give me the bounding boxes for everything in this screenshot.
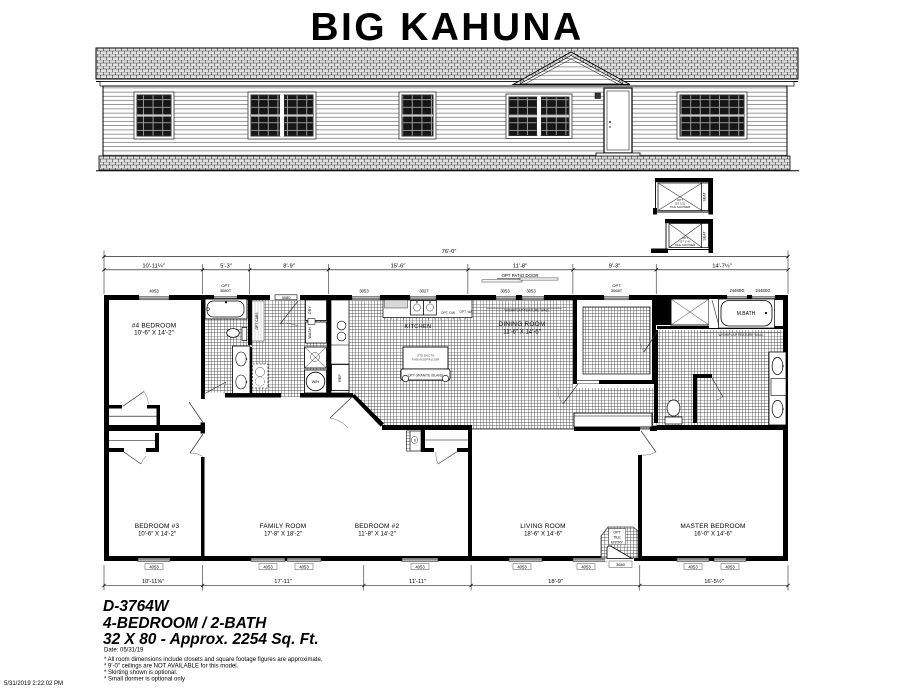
- svg-text:LIVING ROOM: LIVING ROOM: [520, 523, 566, 530]
- svg-text:11′-8″: 11′-8″: [513, 263, 527, 269]
- svg-text:3027: 3027: [419, 289, 429, 294]
- svg-text:5/31/2019 2:22:02 PM: 5/31/2019 2:22:02 PM: [4, 681, 63, 687]
- svg-text:TILE: TILE: [613, 536, 621, 540]
- svg-text:#4 BEDROOM: #4 BEDROOM: [132, 323, 177, 330]
- svg-text:* 9′-0″ ceilings are NOT AVAIL: * 9′-0″ ceilings are NOT AVAILABLE for t…: [104, 664, 239, 670]
- svg-text:SEAT: SEAT: [702, 231, 706, 241]
- svg-text:OPT GRANITE ISLAND: OPT GRANITE ISLAND: [408, 374, 444, 378]
- svg-text:10′-6″ X 14′-2″: 10′-6″ X 14′-2″: [138, 532, 177, 538]
- svg-text:3053: 3053: [500, 289, 510, 294]
- svg-text:3053: 3053: [526, 289, 536, 294]
- svg-text:5′-3″: 5′-3″: [220, 263, 232, 269]
- svg-text:W/SHIPLAP FEATURE WALL: W/SHIPLAP FEATURE WALL: [505, 309, 550, 313]
- svg-text:10′-6″ X 14′-2″: 10′-6″ X 14′-2″: [134, 330, 174, 337]
- svg-text:3080T: 3080T: [220, 288, 232, 293]
- svg-text:W/H: W/H: [312, 380, 320, 384]
- svg-text:10′-11⅝″: 10′-11⅝″: [142, 579, 164, 585]
- svg-text:3068T: 3068T: [611, 288, 623, 293]
- svg-text:D-3764W: D-3764W: [103, 598, 170, 615]
- svg-text:DINING ROOM: DINING ROOM: [499, 321, 546, 328]
- svg-text:BEDROOM #2: BEDROOM #2: [355, 523, 400, 530]
- svg-text:WASH: WASH: [308, 327, 312, 339]
- svg-text:16′-0″ X 14′-6″: 16′-0″ X 14′-6″: [694, 532, 733, 538]
- svg-text:ENTRY: ENTRY: [611, 541, 624, 545]
- svg-text:11′-8″ X 14′-2″: 11′-8″ X 14′-2″: [358, 532, 396, 538]
- svg-text:4053: 4053: [688, 564, 698, 569]
- svg-text:18′-9″: 18′-9″: [548, 579, 563, 585]
- svg-text:* Small dormer is optional onl: * Small dormer is optional only: [104, 677, 185, 683]
- svg-text:32 X 80 - Approx. 2254 Sq. Ft.: 32 X 80 - Approx. 2254 Sq. Ft.: [103, 631, 319, 648]
- svg-text:SEAT: SEAT: [702, 192, 706, 202]
- svg-text:TILE SHOWER: TILE SHOWER: [675, 243, 697, 247]
- svg-text:TILE SHOWER: TILE SHOWER: [670, 205, 692, 209]
- svg-text:OPT CABS: OPT CABS: [255, 312, 259, 330]
- svg-text:2448SG: 2448SG: [729, 288, 744, 293]
- svg-text:3053: 3053: [359, 289, 369, 294]
- svg-text:THIS ROOF/FLOOR: THIS ROOF/FLOOR: [412, 358, 440, 362]
- svg-text:Date: 05/31/19: Date: 05/31/19: [104, 648, 144, 654]
- svg-text:16′-5½″: 16′-5½″: [704, 578, 724, 585]
- svg-text:W/SHIPLAP FEATURE WALL: W/SHIPLAP FEATURE WALL: [719, 333, 764, 337]
- svg-text:17′-8″ X 18′-2″: 17′-8″ X 18′-2″: [264, 532, 303, 538]
- svg-text:4053: 4053: [263, 564, 273, 569]
- svg-text:76′-0″: 76′-0″: [442, 249, 457, 255]
- svg-text:REF: REF: [338, 374, 342, 382]
- svg-text:15′-6″: 15′-6″: [391, 263, 406, 269]
- svg-text:14′-7½″: 14′-7½″: [712, 262, 732, 269]
- svg-text:4053: 4053: [149, 289, 159, 294]
- svg-text:4053: 4053: [149, 564, 159, 569]
- svg-text:* Skirting shown is optional.: * Skirting shown is optional.: [104, 670, 178, 676]
- svg-text:OPT: OPT: [613, 531, 621, 535]
- svg-text:4-BEDROOM / 2-BATH: 4-BEDROOM / 2-BATH: [102, 615, 267, 632]
- svg-text:18′-6″ X 14′-6″: 18′-6″ X 14′-6″: [524, 532, 563, 538]
- svg-text:3680: 3680: [616, 562, 626, 567]
- svg-text:4053: 4053: [725, 564, 735, 569]
- svg-text:OPT PATIO DOOR: OPT PATIO DOOR: [501, 273, 538, 278]
- svg-text:OPT. DW: OPT. DW: [441, 311, 456, 315]
- svg-text:FAMILY ROOM: FAMILY ROOM: [260, 523, 307, 530]
- svg-text:DRY: DRY: [308, 306, 312, 314]
- svg-text:4053: 4053: [581, 564, 591, 569]
- svg-text:17′-11″: 17′-11″: [274, 579, 292, 585]
- svg-text:8′-9″: 8′-9″: [283, 263, 295, 269]
- svg-text:BIG KAHUNA: BIG KAHUNA: [310, 6, 583, 49]
- svg-text:4053: 4053: [415, 564, 425, 569]
- svg-text:MASTER BEDROOM: MASTER BEDROOM: [680, 523, 745, 530]
- svg-text:2448SG: 2448SG: [755, 288, 770, 293]
- svg-text:10′-11¼″: 10′-11¼″: [142, 263, 164, 269]
- svg-text:9′-3″: 9′-3″: [609, 263, 621, 269]
- svg-text:BEDROOM #3: BEDROOM #3: [135, 523, 180, 530]
- svg-text:OPT. WA: OPT. WA: [460, 310, 474, 314]
- svg-text:11′-6″ X 14′-6″: 11′-6″ X 14′-6″: [503, 330, 541, 336]
- svg-text:4053: 4053: [299, 564, 309, 569]
- svg-text:4053: 4053: [517, 564, 527, 569]
- svg-text:* All room dimensions include: * All room dimensions include closets an…: [104, 657, 323, 663]
- svg-text:3080: 3080: [282, 295, 292, 300]
- svg-text:M.BATH: M.BATH: [737, 311, 756, 317]
- svg-text:KITCHEN: KITCHEN: [405, 324, 432, 330]
- svg-text:11′-11″: 11′-11″: [409, 579, 426, 585]
